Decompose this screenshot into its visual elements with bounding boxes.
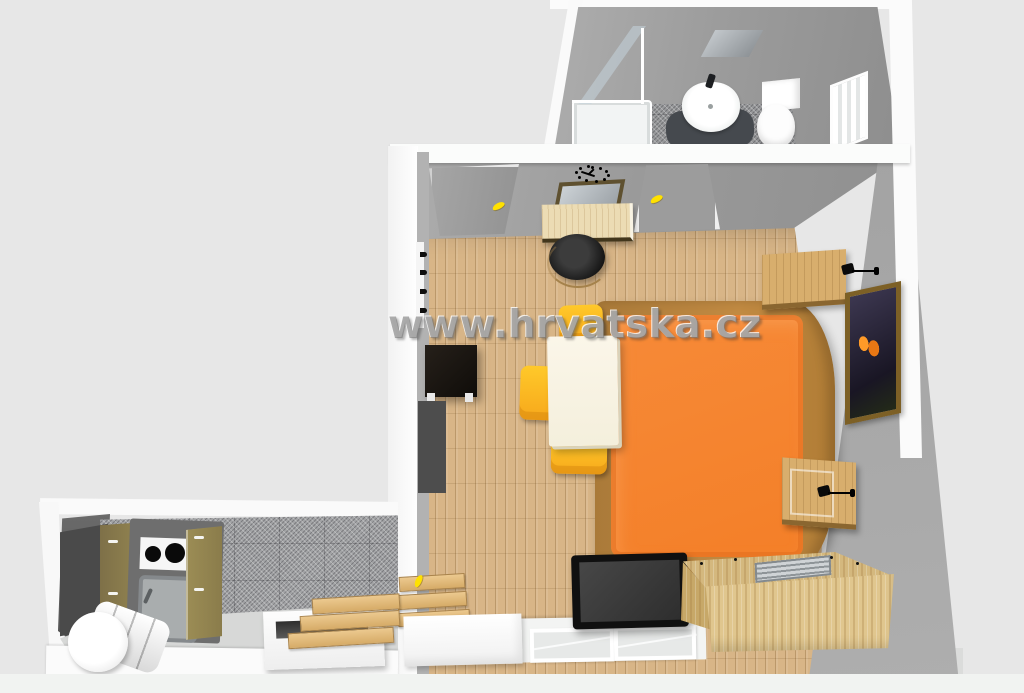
foreground-floor-band (0, 674, 1024, 693)
chest-front-face (700, 574, 894, 652)
window-bottom-1 (530, 627, 615, 662)
toilet-bowl (757, 104, 795, 148)
nightstand-top (762, 249, 846, 310)
wall-lamp-top-icon (842, 264, 882, 278)
bed-mattress-orange (611, 315, 803, 557)
wall-clock-icon (573, 164, 613, 186)
shower-frame-horizontal (572, 100, 644, 103)
wall-lamp-bottom-icon (818, 486, 858, 500)
cabinet-handle-ticks (108, 540, 118, 543)
stool-rim (547, 238, 609, 288)
hob-burner-left-icon (145, 546, 161, 562)
white-radiator-box (403, 613, 522, 666)
coat-hooks-icon (420, 252, 427, 257)
kitchen-outer-top-wall (40, 498, 398, 518)
basin-drain (708, 104, 713, 109)
black-cube-cabinet (425, 345, 477, 397)
tv-screen (579, 560, 681, 623)
dark-wall-panel (418, 401, 446, 493)
chest-knobs (700, 562, 703, 565)
window-bottom-2 (614, 625, 697, 660)
watermark-text: www.hrvatska.cz (388, 303, 748, 348)
shower-frame-vertical (641, 28, 644, 104)
floorplan-render: www.hrvatska.cz (0, 0, 1024, 693)
hob-burner-right-icon (165, 543, 185, 563)
entry-door (429, 164, 519, 236)
wall-bathroom-mainroom (390, 144, 910, 163)
cube-foot-right (465, 393, 473, 402)
bathroom-door (634, 164, 720, 232)
boiler-face (68, 612, 128, 672)
bathroom-window (830, 71, 868, 154)
kitchen-cabinet-right (186, 526, 222, 640)
dining-table (547, 335, 619, 446)
